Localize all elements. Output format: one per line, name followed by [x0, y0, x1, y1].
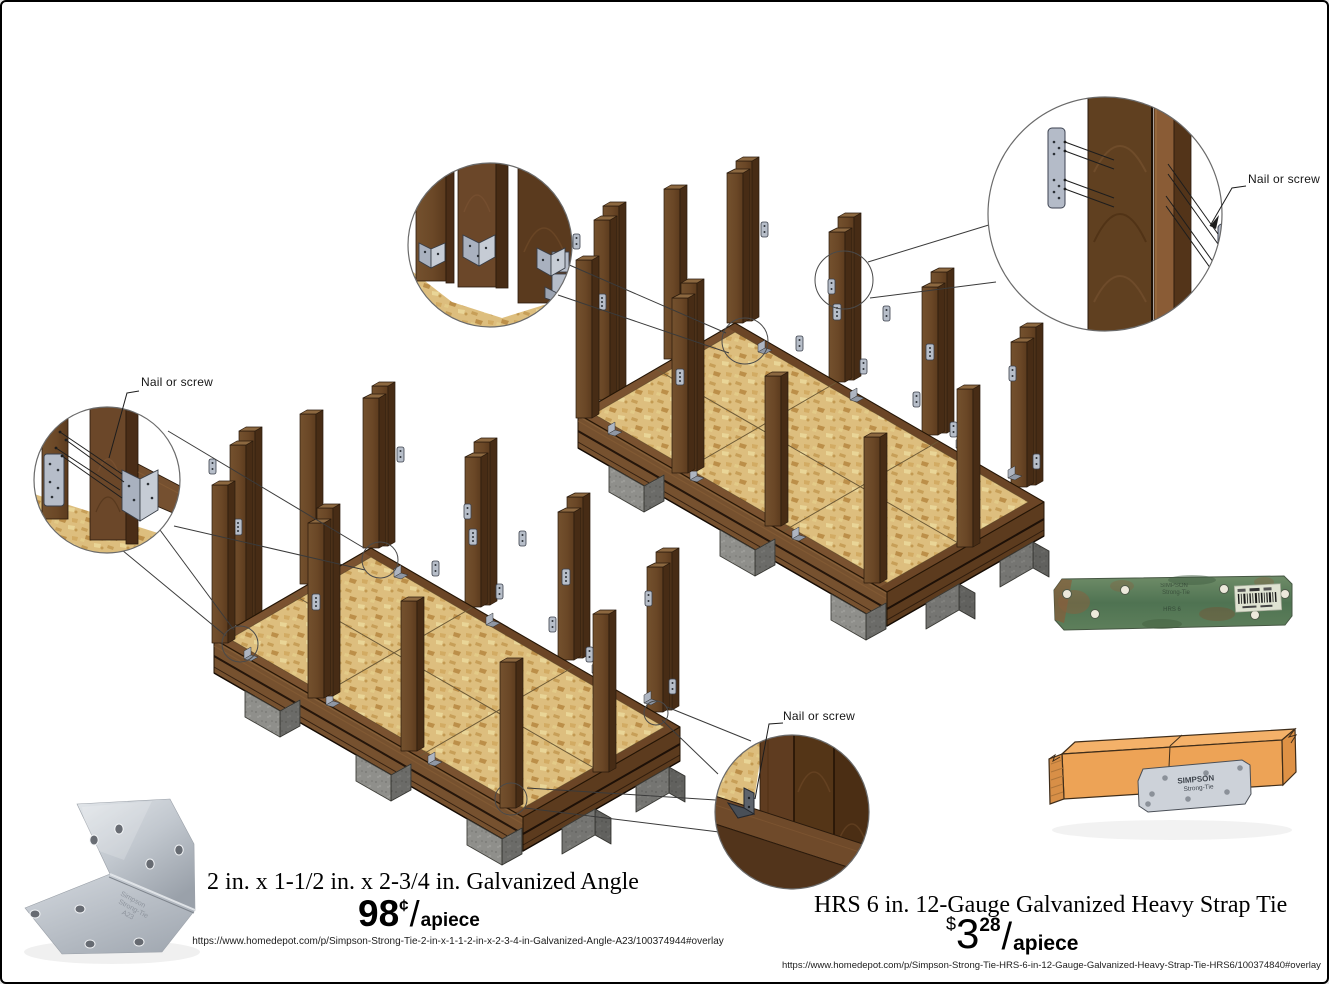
callout-circle-corner-brackets [34, 407, 180, 553]
angle-price-amount: 98 [358, 895, 399, 932]
strap-price-dollars: 3 [956, 913, 979, 955]
nail-or-screw-label-left: Nail or screw [141, 375, 213, 389]
callout-circle-floor-angles [408, 160, 572, 327]
strap-barcode-label [1234, 584, 1281, 612]
svg-text:SIMPSON: SIMPSON [1160, 583, 1188, 589]
strap-product-price: $ 3 28 / apiece [946, 913, 1078, 956]
angle-product-url[interactable]: https://www.homedepot.com/p/Simpson-Stro… [188, 936, 728, 947]
svg-text:HRS 6: HRS 6 [1163, 607, 1181, 613]
svg-text:Strong-Tie: Strong-Tie [1162, 590, 1190, 596]
angle-price-unit: apiece [421, 911, 480, 930]
strap-price-unit: apiece [1013, 933, 1078, 954]
strap-product-url[interactable]: https://www.homedepot.com/p/Simpson-Stro… [782, 960, 1312, 971]
frame-structure-upper [573, 157, 1049, 640]
strap-price-cents: 28 [979, 916, 1000, 935]
nail-or-screw-label-right: Nail or screw [1248, 172, 1320, 186]
assembly-diagram-page: Simpson Strong-Tie A23 SIMPSON Strong-Ti… [0, 0, 1329, 984]
angle-product-title: 2 in. x 1-1/2 in. x 2-3/4 in. Galvanized… [188, 869, 658, 896]
callout-circle-rim-angle [715, 735, 870, 889]
strap-application-drawing: SIMPSON Strong-Tie [1049, 729, 1296, 840]
angle-price-cent-symbol: ¢ [399, 897, 408, 914]
strap-product-image: SIMPSON Strong-Tie HRS 6 [1054, 575, 1292, 630]
strap-price-slash: / [1001, 918, 1014, 956]
diagram-svg: Simpson Strong-Tie A23 SIMPSON Strong-Ti… [2, 2, 1329, 984]
angle-price-slash: / [409, 896, 421, 932]
nail-or-screw-label-bottom: Nail or screw [783, 709, 855, 723]
strap-price-currency: $ [946, 915, 956, 933]
callout-circle-strap-nailing [988, 97, 1235, 331]
angle-product-price: 98 ¢ / apiece [358, 895, 480, 932]
angle-product-image: Simpson Strong-Tie A23 [24, 799, 200, 964]
